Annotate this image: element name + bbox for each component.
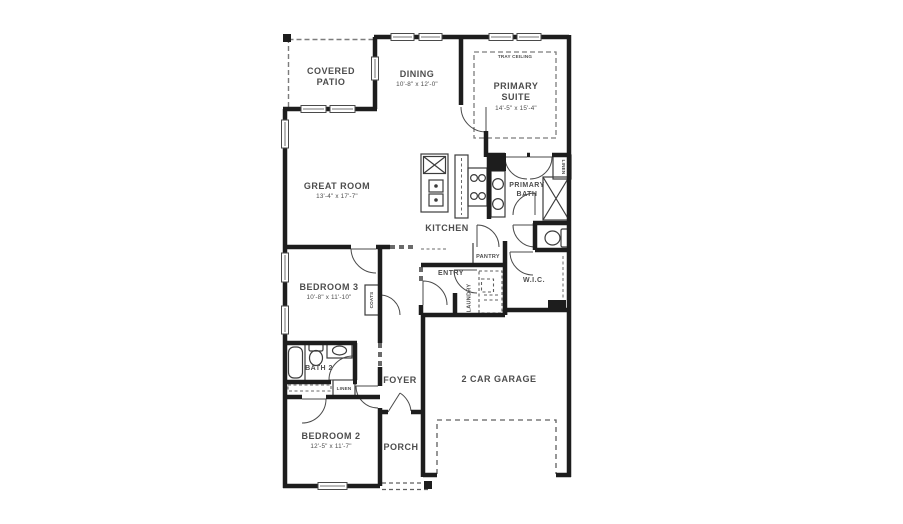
primary-toilet <box>545 229 569 247</box>
room-label-foyer: FOYER <box>383 375 417 386</box>
room-dims-great-room: 13'-4" x 17'-7" <box>316 193 358 201</box>
closet-label-linen-hall: LINEN <box>337 386 352 392</box>
porch-edge-dashed <box>382 483 428 490</box>
bedroom2-closet-shelf-dash <box>288 385 331 391</box>
room-label-bedroom-3: BEDROOM 3 <box>299 282 358 293</box>
room-label-porch: PORCH <box>383 442 418 453</box>
room-label-kitchen: KITCHEN <box>425 223 469 234</box>
bath2-toilet <box>309 344 323 366</box>
closet-label-coats: COATS <box>369 292 375 309</box>
garage-door-dashed <box>437 420 556 474</box>
room-dims-bedroom-3: 10'-8" x 11'-10" <box>307 294 352 302</box>
kitchen-island <box>421 154 448 212</box>
closet-label-linen-primary: LINEN <box>560 160 566 175</box>
room-label-dining: DINING <box>400 69 435 80</box>
room-label-great-room: GREAT ROOM <box>304 181 370 192</box>
floor-plan-canvas: COVERED PATIO DINING 10'-8" x 12'-0" TRA… <box>0 0 903 524</box>
room-label-wic: W.I.C. <box>523 277 545 286</box>
room-label-bath-2: BATH 2 <box>305 365 333 374</box>
room-label-entry: ENTRY <box>438 270 464 279</box>
cased-opening-dashes <box>380 247 421 367</box>
floor-plan-drawing <box>0 0 903 524</box>
room-label-primary-bath: PRIMARY BATH <box>503 182 551 200</box>
feature-label-tray-ceiling: TRAY CEILING <box>498 54 532 60</box>
bathtub <box>286 344 305 381</box>
room-label-garage: 2 CAR GARAGE <box>461 374 536 385</box>
room-label-pantry: PANTRY <box>476 254 500 261</box>
room-dims-dining: 10'-8" x 12'-0" <box>396 81 438 89</box>
room-label-bedroom-2: BEDROOM 2 <box>301 431 360 442</box>
room-label-primary-suite: PRIMARY SUITE <box>485 81 547 104</box>
washer-dryer <box>479 271 502 313</box>
room-label-covered-patio: COVERED PATIO <box>298 66 364 89</box>
room-label-laundry: LAUNDRY <box>467 284 474 313</box>
cooktop <box>468 168 487 206</box>
room-dims-bedroom-2: 12'-5" x 11'-7" <box>310 443 351 451</box>
room-dims-primary-suite: 14'-5" x 15'-4" <box>495 105 537 113</box>
